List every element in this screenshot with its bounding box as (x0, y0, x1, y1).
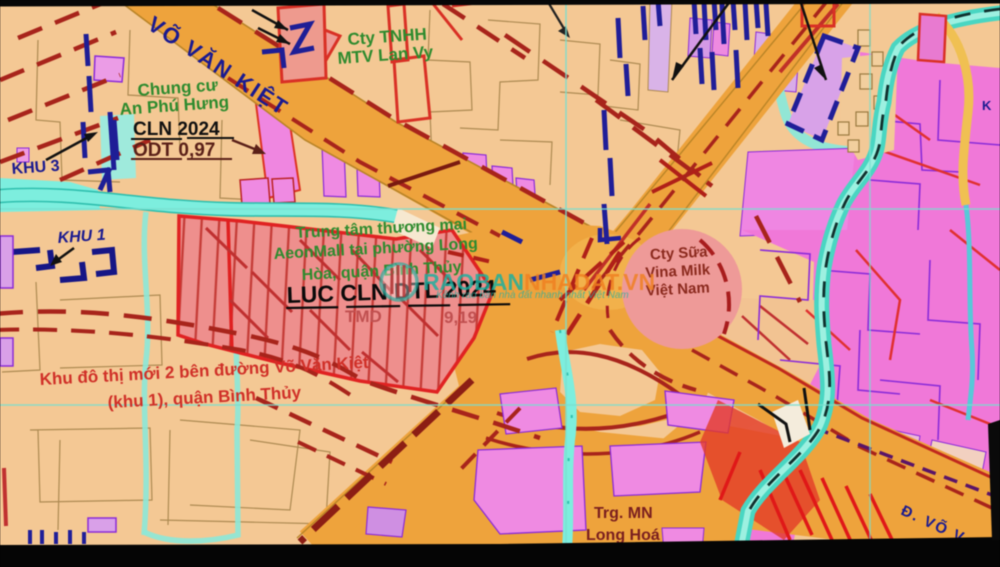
svg-text:Cty Sữa: Cty Sữa (650, 243, 709, 263)
svg-text:CLN 2024: CLN 2024 (133, 119, 220, 140)
svg-text:Trg. MN: Trg. MN (594, 505, 653, 522)
svg-text:TMD: TMD (345, 307, 382, 326)
svg-text:Long Hoá: Long Hoá (586, 527, 660, 544)
svg-text:ODT 0,97: ODT 0,97 (133, 140, 215, 161)
svg-text:Kênh rao bán nhà đất nhanh nhấ: Kênh rao bán nhà đất nhanh nhất Việt Nam (436, 289, 629, 301)
svg-text:K: K (982, 98, 992, 113)
svg-text:9,19: 9,19 (444, 308, 477, 327)
svg-text:KHU 3: KHU 3 (11, 158, 60, 178)
svg-text:KHU 1: KHU 1 (57, 227, 106, 247)
